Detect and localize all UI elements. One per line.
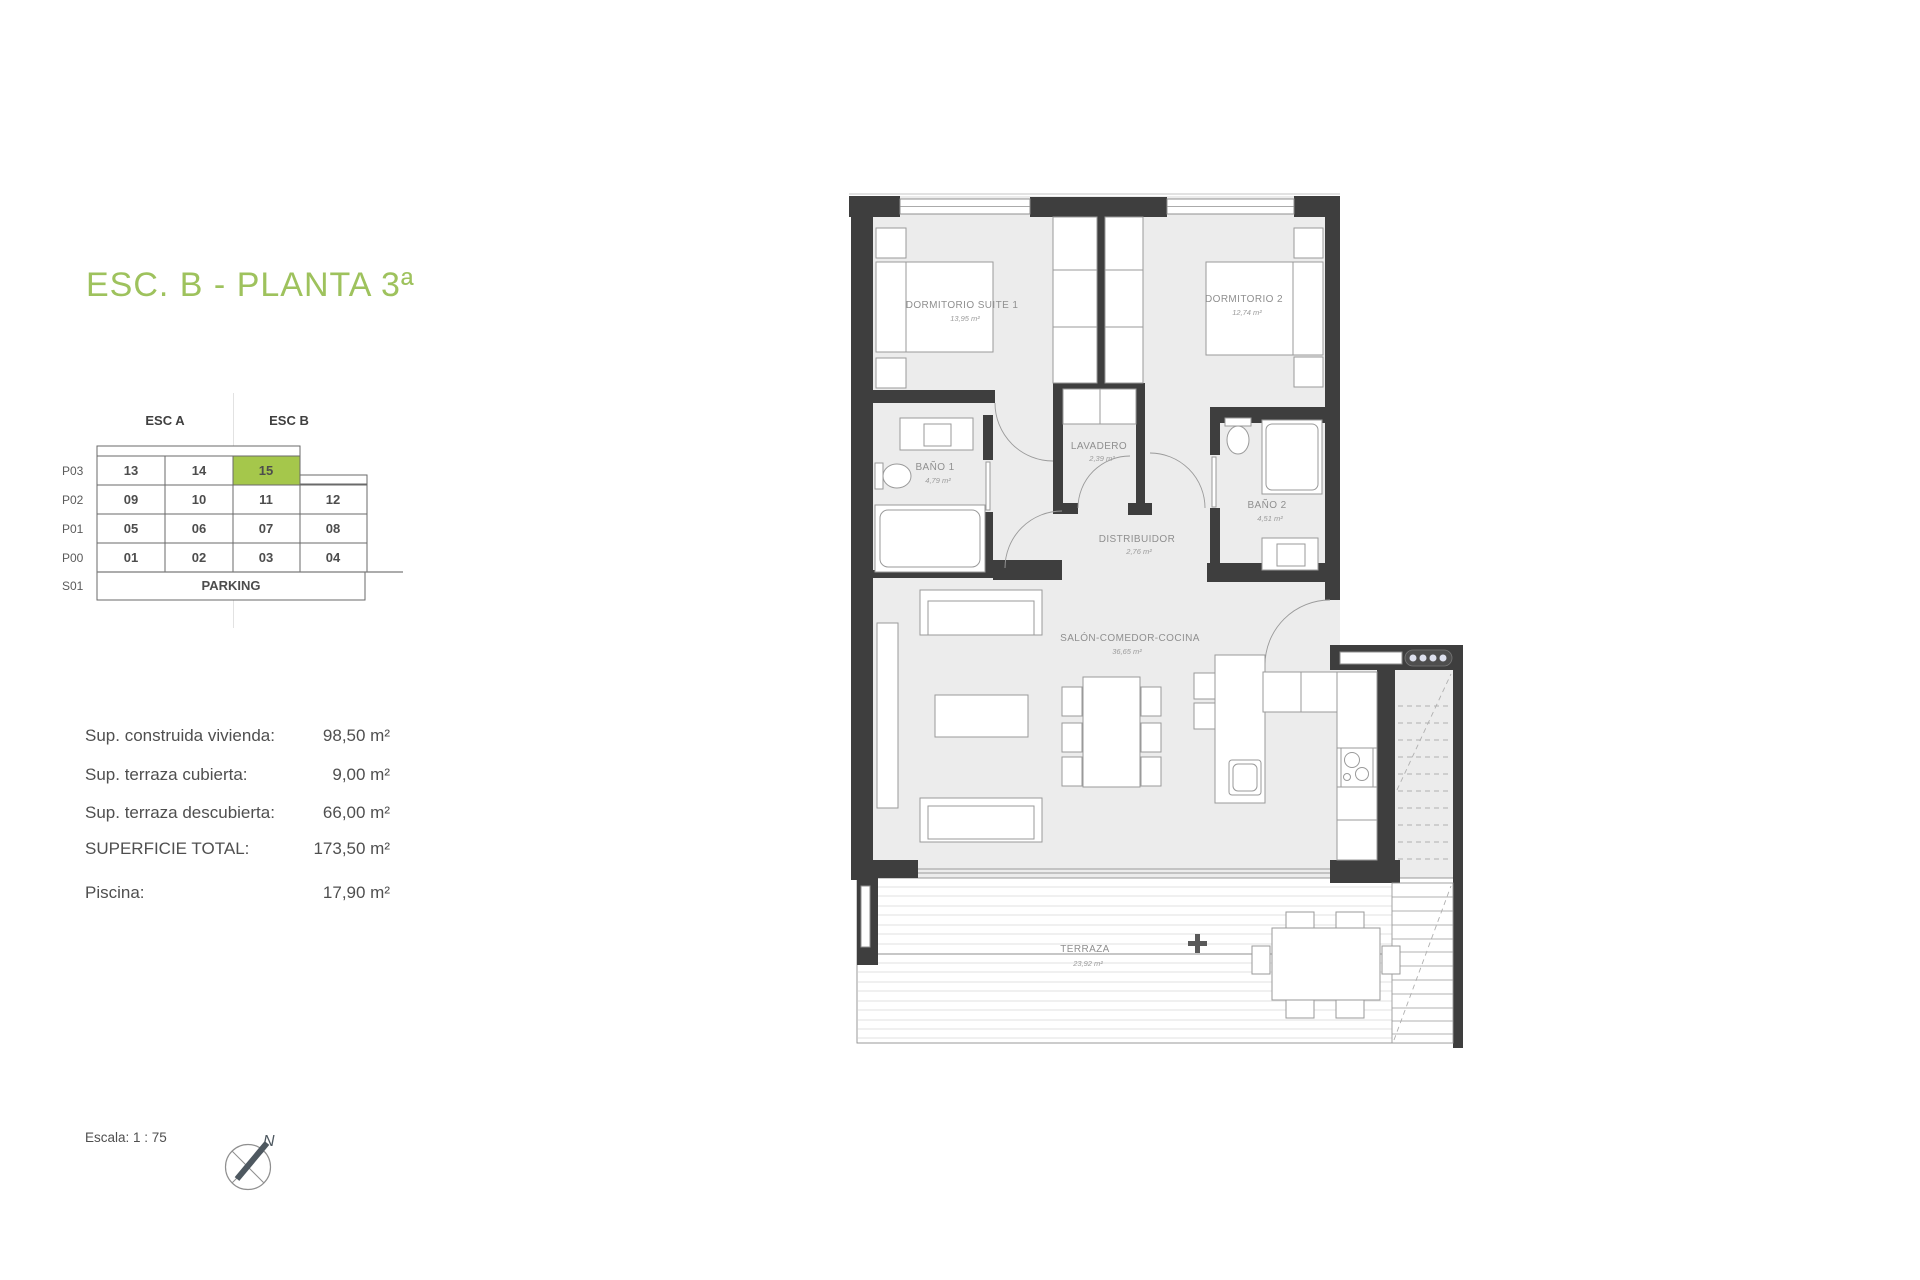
- room-label-terraza: TERRAZA: [1060, 944, 1109, 955]
- bed: [1206, 262, 1323, 355]
- row-label-p00: P00: [62, 551, 84, 565]
- room-label-distribuidor: DISTRIBUIDOR: [1099, 534, 1175, 545]
- dryer: [1100, 389, 1136, 424]
- dining-chair: [1141, 757, 1161, 786]
- row-label-p02: P02: [62, 493, 84, 507]
- dining-chair: [1062, 723, 1082, 752]
- unit-label: 10: [192, 492, 206, 507]
- unit-label: 06: [192, 521, 206, 536]
- room-label-dorm2: DORMITORIO 2: [1205, 294, 1283, 305]
- room-area-distribuidor: 2,76 m²: [1125, 547, 1152, 556]
- door-leaf-bathroom2: [1212, 457, 1216, 507]
- room-label-lavadero: LAVADERO: [1071, 441, 1127, 452]
- room-area-lavadero: 2,39 m²: [1088, 454, 1115, 463]
- stool: [1194, 703, 1215, 729]
- row-label-p01: P01: [62, 522, 84, 536]
- room-label-bano1: BAÑO 1: [915, 460, 954, 473]
- outdoor-chair: [1286, 1000, 1314, 1018]
- toilet: [1227, 426, 1249, 454]
- unit-label: 03: [259, 550, 273, 565]
- toilet-tank: [875, 463, 883, 489]
- room-area-bano1: 4,79 m²: [925, 476, 951, 485]
- roof-strip: [97, 446, 300, 456]
- measure-value: 9,00 m²: [230, 765, 390, 785]
- unit-label: 08: [326, 521, 340, 536]
- roof-strip-right: [300, 475, 367, 484]
- window-terrace-stub: [861, 886, 870, 947]
- shower-inner: [1266, 424, 1318, 490]
- floorplan-drawing: DORMITORIO SUITE 1 13,95 m² DORMITORIO 2…: [845, 140, 1485, 1060]
- room-area-suite1: 13,95 m²: [950, 314, 980, 323]
- room-label-bano2: BAÑO 2: [1247, 498, 1286, 511]
- tv-sideboard: [877, 623, 898, 808]
- dining-chair: [1141, 723, 1161, 752]
- outdoor-chair: [1286, 912, 1314, 930]
- unit-label: 13: [124, 463, 138, 478]
- nightstand: [876, 228, 906, 258]
- compass-icon: N: [210, 1118, 300, 1203]
- room-area-bano2: 4,51 m²: [1257, 514, 1283, 523]
- door-leaf-bathroom1: [986, 462, 990, 510]
- room-label-suite1: DORMITORIO SUITE 1: [906, 300, 1019, 311]
- unit-label: 04: [326, 550, 341, 565]
- sink: [924, 424, 951, 446]
- parking-label: PARKING: [202, 578, 261, 593]
- dining-chair: [1141, 687, 1161, 716]
- level-cross-icon: [1195, 934, 1200, 953]
- measure-piscina: Piscina: 17,90 m²: [85, 883, 405, 905]
- toilet: [883, 464, 911, 488]
- room-area-dorm2: 12,74 m²: [1232, 308, 1262, 317]
- dining-chair: [1062, 687, 1082, 716]
- unit-selector-table: ESC A ESC B 13 14 15 09 10 11 12: [50, 400, 420, 640]
- outdoor-table: [1272, 928, 1380, 1000]
- washer: [1063, 389, 1100, 424]
- measure-label: Piscina:: [85, 883, 145, 903]
- measure-label: Sup. terraza cubierta:: [85, 765, 248, 785]
- outdoor-chair: [1382, 946, 1400, 974]
- measure-label: SUPERFICIE TOTAL:: [85, 839, 249, 859]
- outdoor-chair: [1252, 946, 1270, 974]
- unit-label: 09: [124, 492, 138, 507]
- unit-label: 05: [124, 521, 138, 536]
- measure-value: 66,00 m²: [230, 803, 390, 823]
- unit-label: 07: [259, 521, 273, 536]
- measure-value: 98,50 m²: [230, 726, 390, 746]
- nightstand: [1294, 357, 1323, 387]
- dining-chair: [1062, 757, 1082, 786]
- floorplan-page: ESC. B - PLANTA 3ª ESC A ESC B: [0, 0, 1920, 1280]
- measure-terraza-descubierta: Sup. terraza descubierta: 66,00 m²: [85, 803, 405, 825]
- measure-value: 173,50 m²: [230, 839, 390, 859]
- row-label-p03: P03: [62, 464, 84, 478]
- toilet-tank: [1225, 418, 1251, 426]
- table-header-esc-a: ESC A: [145, 413, 185, 428]
- sink: [1277, 544, 1305, 566]
- unit-label: 01: [124, 550, 138, 565]
- unit-label: 11: [259, 492, 273, 507]
- table-header-esc-b: ESC B: [269, 413, 309, 428]
- measure-construida: Sup. construida vivienda: 98,50 m²: [85, 726, 405, 748]
- room-area-salon: 36,65 m²: [1112, 647, 1142, 656]
- unit-label: 14: [192, 463, 207, 478]
- bathtub-inner: [880, 510, 980, 567]
- scale-label: Escala: 1 : 75: [85, 1130, 167, 1145]
- measure-superficie-total: SUPERFICIE TOTAL: 173,50 m²: [85, 839, 405, 861]
- page-title: ESC. B - PLANTA 3ª: [86, 266, 415, 305]
- nightstand: [1294, 228, 1323, 258]
- compass-north-label: N: [263, 1133, 275, 1150]
- room-area-terraza: 23,92 m²: [1072, 959, 1103, 968]
- row-label-s01: S01: [62, 579, 84, 593]
- unit-label: 12: [326, 492, 340, 507]
- coffee-table: [935, 695, 1028, 737]
- outdoor-chair: [1336, 912, 1364, 930]
- measure-value: 17,90 m²: [230, 883, 390, 903]
- nightstand: [876, 358, 906, 388]
- window-annex: [1340, 652, 1402, 664]
- room-label-salon: SALÓN-COMEDOR-COCINA: [1060, 631, 1200, 644]
- unit-label-highlighted: 15: [259, 463, 273, 478]
- unit-label: 02: [192, 550, 206, 565]
- measure-terraza-cubierta: Sup. terraza cubierta: 9,00 m²: [85, 765, 405, 787]
- stool: [1194, 673, 1215, 699]
- outdoor-chair: [1336, 1000, 1364, 1018]
- dining-table: [1083, 677, 1140, 787]
